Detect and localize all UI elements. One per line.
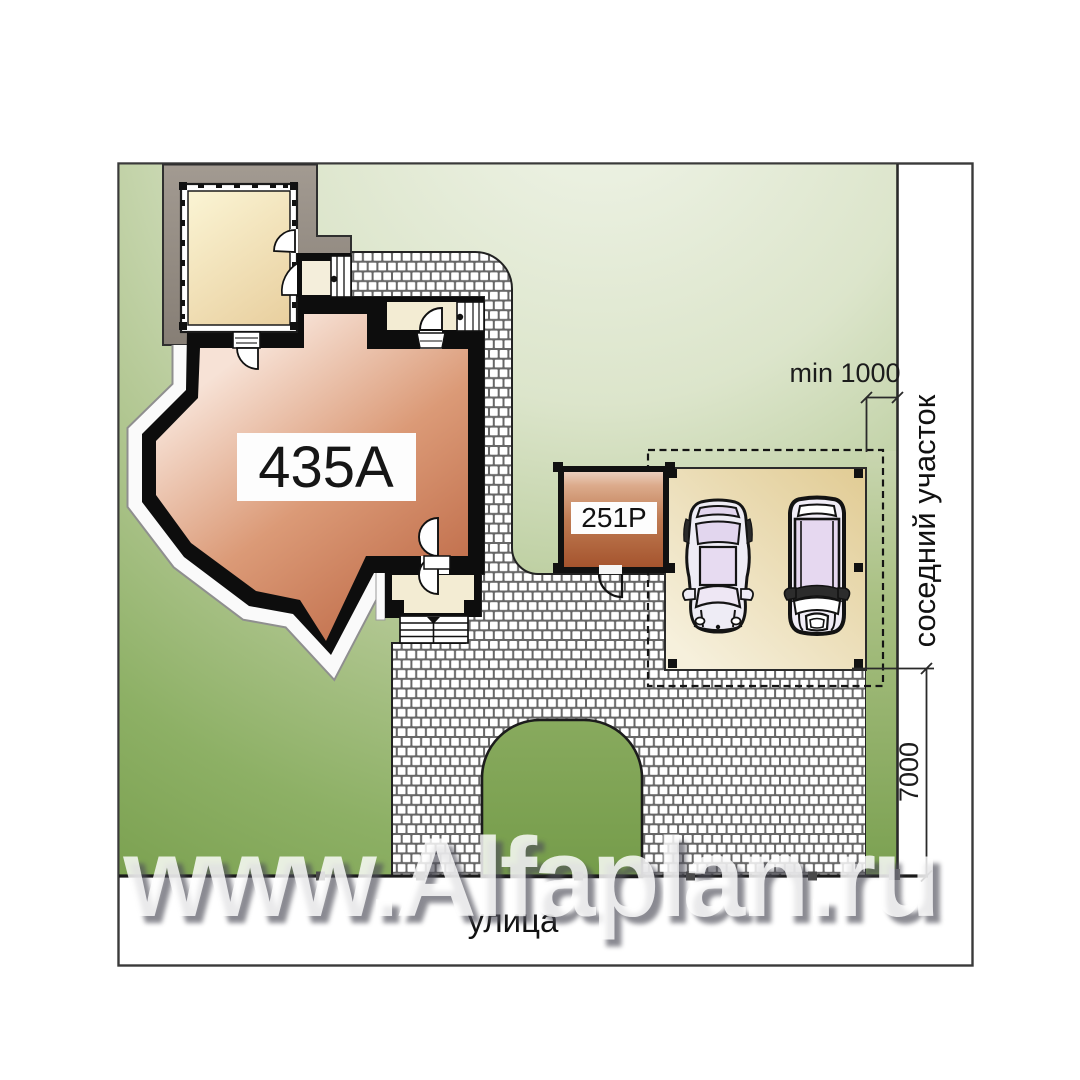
svg-text:соседний участок: соседний участок bbox=[907, 394, 942, 647]
svg-text:www.Alfaplan.ru: www.Alfaplan.ru bbox=[122, 815, 936, 940]
svg-text:435A: 435A bbox=[258, 435, 394, 500]
svg-text:min 1000: min 1000 bbox=[789, 358, 900, 388]
svg-text:7000: 7000 bbox=[894, 742, 924, 802]
svg-text:251P: 251P bbox=[581, 502, 646, 533]
